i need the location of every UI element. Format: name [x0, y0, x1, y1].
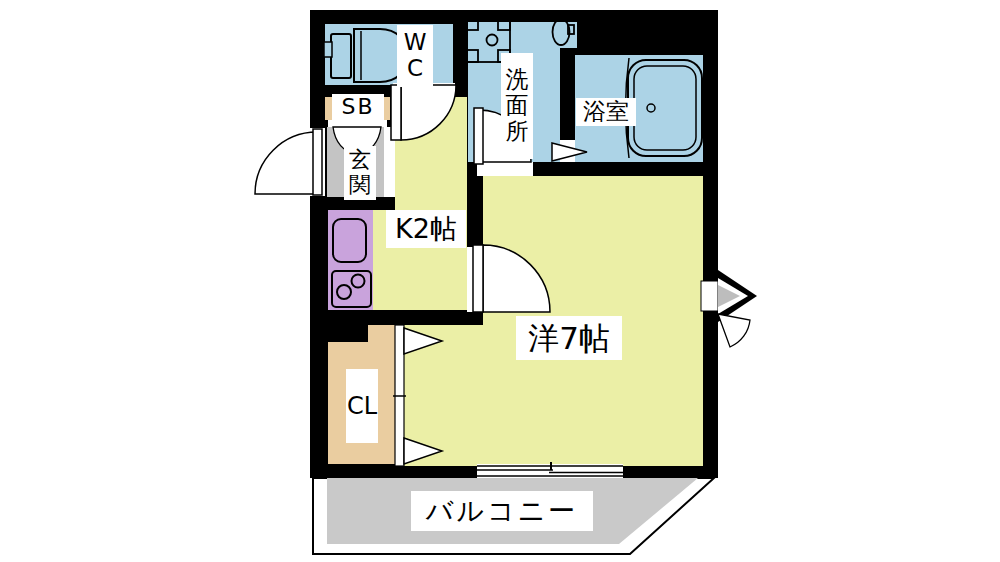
entrance-door-leaf [313, 129, 322, 195]
washroom-label: 洗面所 [501, 53, 533, 159]
closet-label: CL [346, 369, 378, 443]
shoe-box-gap [328, 120, 387, 127]
wc-label: WC [397, 25, 433, 87]
entrance-door-swing-icon [255, 132, 317, 194]
sliding-window-icon [477, 462, 623, 478]
closet-floor-upper [368, 325, 395, 342]
room-door-leaf [473, 245, 483, 312]
entrance-label: 玄関 [344, 146, 376, 200]
floor-plan-drawing [0, 0, 1000, 562]
kitchen-door-leaf [391, 85, 401, 140]
washroom-doorway [477, 162, 533, 176]
washroom-door-leaf [474, 108, 483, 164]
bathroom-label: 浴室 [576, 98, 636, 126]
kitchen-label: K2帖 [386, 210, 466, 248]
floor-plan: WC 洗面所 浴室 SB 玄関 K2帖 洋7帖 CL バルコニー [0, 0, 1000, 562]
balcony-label: バルコニー [411, 491, 593, 531]
shoe-box-label: SB [332, 94, 384, 120]
western-room-label: 洋7帖 [516, 316, 622, 360]
